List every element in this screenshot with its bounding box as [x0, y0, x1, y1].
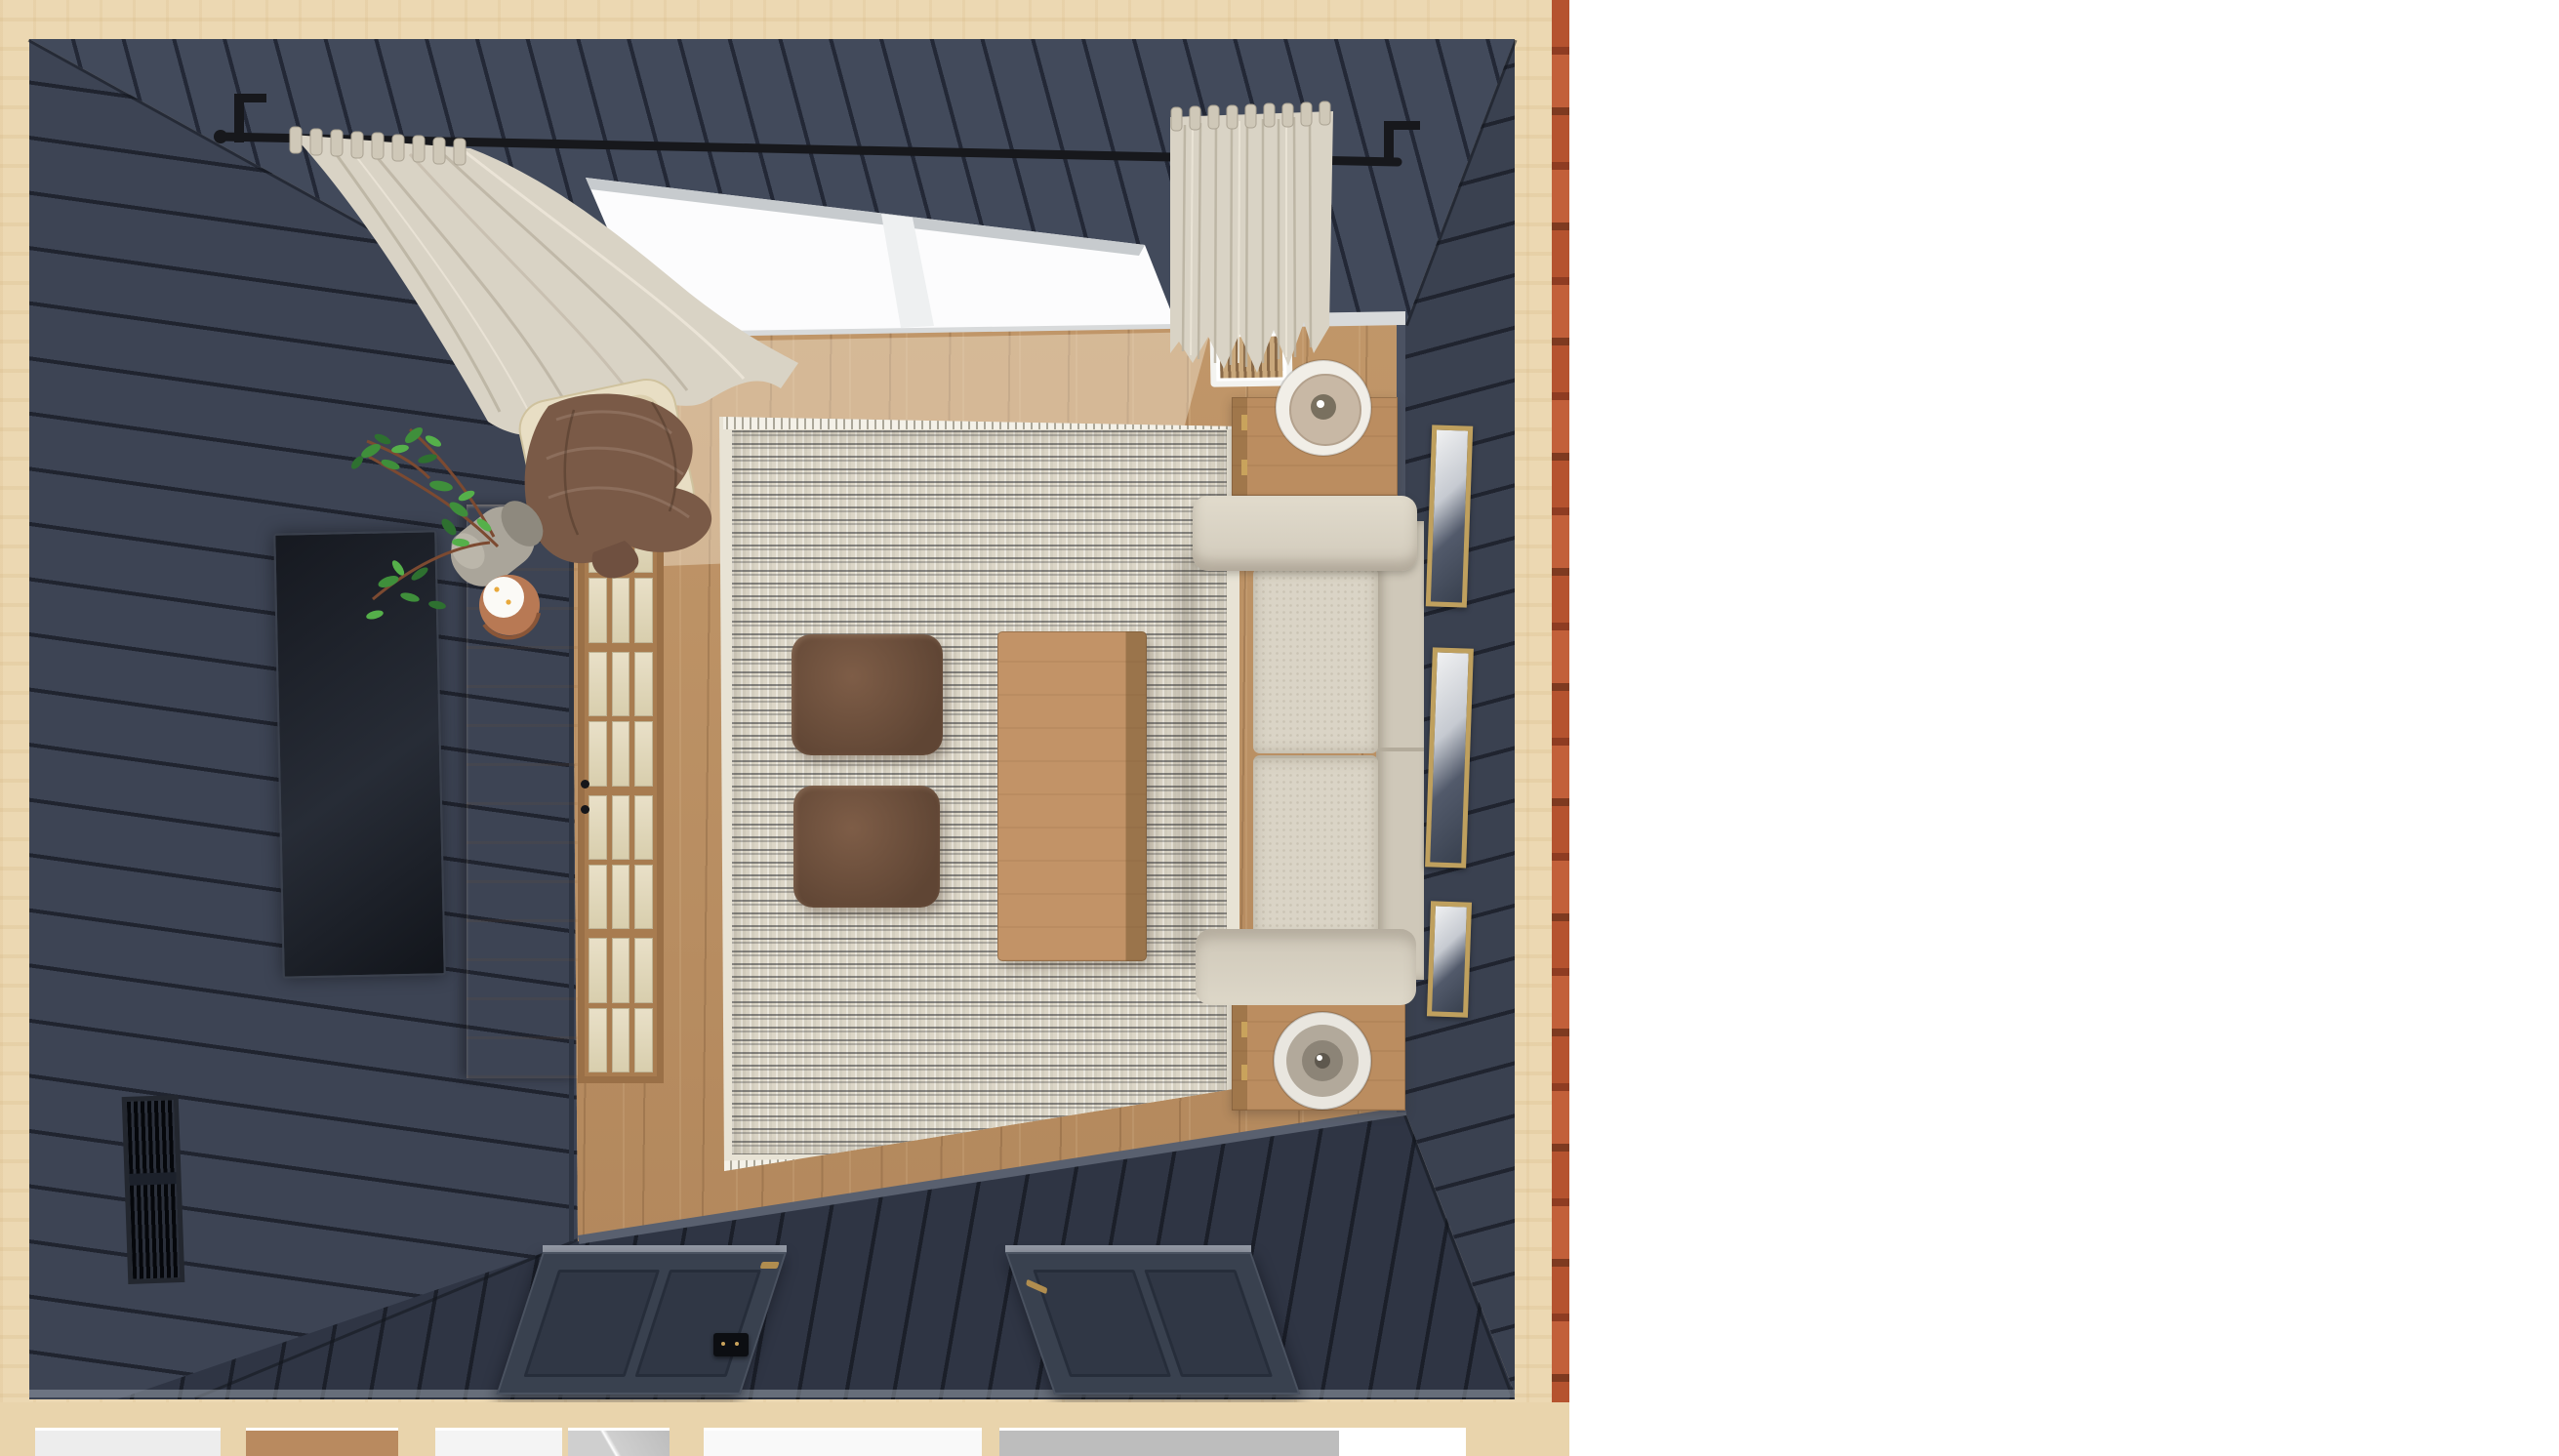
wall-art-frame [1427, 901, 1472, 1017]
sofa-seat-cushion [1253, 568, 1378, 753]
wall-art-frame [1425, 647, 1474, 868]
sofa-armrest [1193, 496, 1417, 571]
pouf-lower [793, 786, 940, 908]
door-right [1005, 1252, 1300, 1395]
hinge-icon [1241, 415, 1247, 430]
lower-floor-strip [0, 1402, 1569, 1456]
lower-room-opening [568, 1428, 670, 1456]
cabinet-section [589, 652, 653, 787]
lower-room-opening [704, 1428, 982, 1456]
lower-room-opening [35, 1428, 221, 1456]
cabinet-section [589, 795, 653, 930]
tv-screen [273, 530, 446, 978]
lower-room-opening [1339, 1428, 1466, 1456]
sofa-back-seam [1376, 748, 1424, 751]
door-handle [759, 1262, 779, 1269]
3d-room-viewport[interactable] [0, 0, 1569, 1456]
hinge-icon [1241, 460, 1247, 475]
brick-edge [1552, 0, 1569, 1412]
pouf-upper [792, 634, 943, 755]
hinge-icon [1241, 1065, 1247, 1080]
floor-vent [1209, 327, 1292, 386]
sofa-shadow [1179, 554, 1197, 964]
cabinet-section [589, 938, 653, 1072]
lower-room-opening [435, 1428, 562, 1456]
coffee-table [997, 631, 1147, 961]
lower-wood-wall [246, 1428, 398, 1456]
lower-room-opening [999, 1428, 1339, 1456]
cabinet-knob [581, 805, 589, 814]
door-left [497, 1252, 787, 1395]
wall-vent [122, 1095, 185, 1284]
end-table-upper [1232, 397, 1398, 496]
glass-cabinet [578, 498, 664, 1083]
wall-art-frame [1426, 425, 1473, 607]
floor-outlet [713, 1333, 749, 1356]
hinge-icon [1241, 1022, 1247, 1037]
wall-vent-divider [129, 1172, 176, 1186]
floor-vent-slats [1220, 336, 1283, 378]
cabinet-knob [581, 780, 589, 789]
cabinet-section [589, 508, 653, 643]
sofa-armrest [1196, 929, 1416, 1005]
media-console [467, 505, 578, 1078]
sofa-seat-cushion [1253, 755, 1378, 938]
sofa [1193, 496, 1424, 1005]
